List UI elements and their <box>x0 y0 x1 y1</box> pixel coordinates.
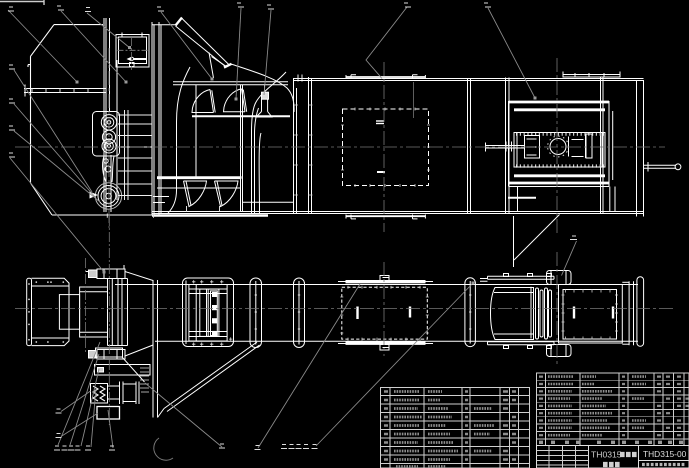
svg-text:THD315-00: THD315-00 <box>643 449 687 459</box>
svg-text:TH0315: TH0315 <box>591 450 622 460</box>
